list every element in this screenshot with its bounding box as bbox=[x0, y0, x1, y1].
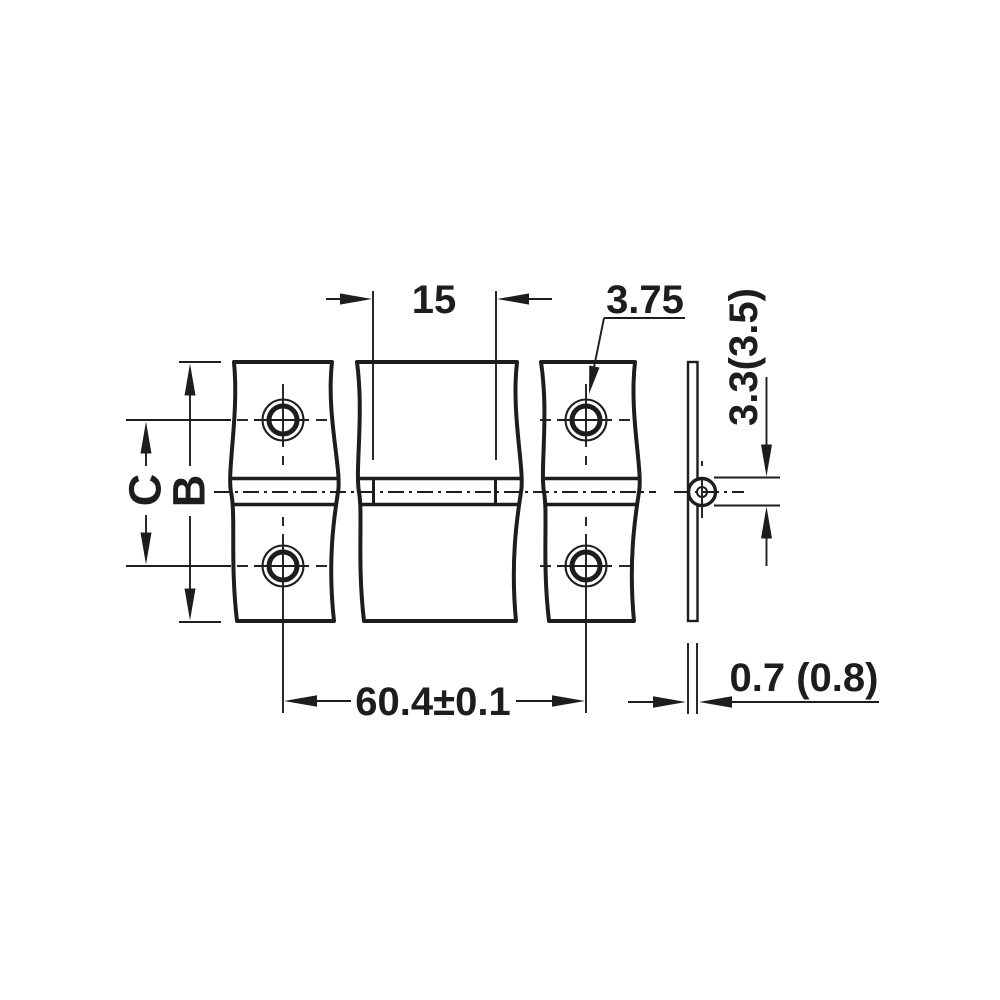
drawing-canvas: 15 3.75 3.3(3.5) C B bbox=[0, 0, 1000, 1000]
knuckle-diameter-label: 3.3(3.5) bbox=[722, 288, 766, 426]
hinge-technical-drawing: 15 3.75 3.3(3.5) C B bbox=[0, 0, 1000, 1000]
material-thickness-label: 0.7 (0.8) bbox=[730, 656, 879, 700]
dim-b-label: B bbox=[164, 475, 215, 508]
hole-diameter-label: 3.75 bbox=[606, 278, 684, 322]
knuckle-width-label: 15 bbox=[412, 278, 457, 322]
hole-pitch-label: 60.4±0.1 bbox=[355, 680, 510, 724]
